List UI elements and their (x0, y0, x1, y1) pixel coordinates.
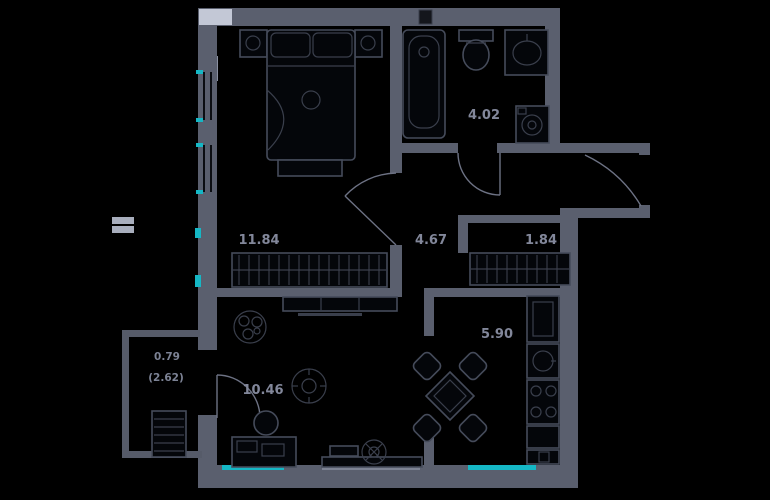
double-bed-icon (267, 30, 355, 160)
bedroom-door-swing-arc (345, 173, 396, 245)
plant-icon (234, 311, 266, 343)
wall-balcony-left (122, 330, 129, 458)
room-label-kitchen: 5.90 (481, 327, 513, 342)
wall-entry-top (545, 143, 650, 153)
wall-bathroom-south-left (402, 143, 458, 153)
floor-plan-drawing: 11.84 4.02 4.67 (0, 0, 770, 500)
kitchen-counter-icon (527, 426, 559, 448)
chair-icon (411, 350, 442, 381)
window-left-2-frame (198, 145, 217, 192)
bathroom-door-swing-arc (458, 153, 500, 195)
ac-unit-icon (112, 217, 134, 233)
drying-rack-icon (152, 411, 186, 457)
dining-table-icon (411, 350, 488, 443)
wall-closet-north (468, 215, 560, 223)
desk-icon (232, 411, 296, 467)
stove-icon (527, 380, 559, 424)
nightstand-icon (240, 30, 267, 57)
wall-closet-west (458, 215, 468, 253)
wall-left-1 (198, 26, 217, 72)
shelf-unit-icon (283, 297, 397, 316)
chair-icon (457, 412, 488, 443)
wall-top (198, 8, 560, 26)
kitchen-sink-icon (527, 344, 559, 378)
wall-right (560, 208, 578, 488)
wall-bedroom-right-upper (390, 26, 402, 173)
wall-shaft-white-block (199, 9, 232, 25)
wall-entry-bottom (578, 208, 650, 218)
room-bedroom: 11.84 (232, 30, 387, 287)
bench-icon (278, 160, 342, 176)
room-bathroom: 4.02 (403, 30, 549, 143)
kitchen-line (527, 296, 559, 464)
room-hallway: 4.67 (415, 233, 447, 248)
wall-bathroom-south-right (497, 143, 545, 153)
wall-bedroom-south (217, 288, 397, 297)
floor-plan-canvas: 11.84 4.02 4.67 (0, 0, 770, 500)
room-label-living: 10.46 (242, 383, 283, 398)
washing-machine-icon (516, 106, 549, 143)
room-label-bedroom: 11.84 (238, 233, 279, 248)
room-label-closet: 1.84 (525, 233, 557, 248)
desk-chair-icon (254, 411, 278, 435)
wall-balcony-top (122, 330, 200, 337)
room-label-bathroom: 4.02 (468, 108, 500, 123)
bathtub-icon (403, 30, 445, 138)
room-label-balcony: 0.79 (154, 351, 180, 363)
nightstand-icon (355, 30, 382, 57)
vent-shaft-icon (419, 10, 432, 24)
room-living: 10.46 (232, 297, 422, 467)
fridge-icon (527, 296, 559, 342)
washbasin-icon (505, 30, 548, 75)
kitchen-cabinet-icon (527, 450, 559, 464)
wardrobe-icon (470, 253, 570, 285)
toilet-icon (459, 30, 493, 70)
room-balcony: 0.79 (2.62) (148, 351, 186, 457)
window-bottom-kitchen (468, 465, 536, 470)
wall-kitchen-partition-top (424, 288, 434, 336)
entrance-door-swing-arc (585, 155, 641, 206)
walls (112, 8, 650, 488)
wardrobe-icon (232, 253, 387, 287)
tv-icon (330, 446, 358, 456)
chair-icon (457, 350, 488, 381)
room-label-balcony-full: (2.62) (148, 372, 184, 384)
chair-icon (411, 412, 442, 443)
wall-left-3 (198, 192, 217, 350)
window-left-1-frame (198, 72, 217, 120)
wall-left-2 (198, 120, 217, 145)
room-closet: 1.84 (470, 233, 570, 285)
ceiling-light-icon (292, 369, 326, 403)
wall-entry-right-1 (639, 143, 650, 155)
room-label-hallway: 4.67 (415, 233, 447, 248)
